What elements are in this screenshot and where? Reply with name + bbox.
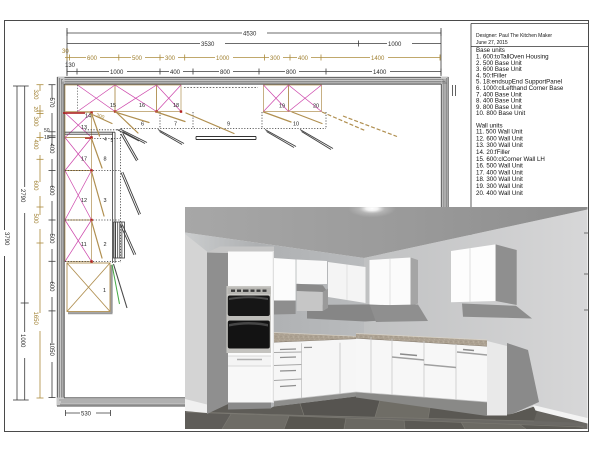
svg-text:400: 400 xyxy=(170,70,181,76)
svg-text:18: 18 xyxy=(44,135,50,141)
svg-text:17: 17 xyxy=(81,157,87,163)
svg-text:800: 800 xyxy=(286,70,297,76)
svg-text:15: 15 xyxy=(110,103,116,109)
svg-text:1000: 1000 xyxy=(19,334,25,348)
svg-text:11: 11 xyxy=(81,242,87,248)
svg-text:1400: 1400 xyxy=(371,56,385,62)
svg-text:4: 4 xyxy=(104,137,107,143)
svg-text:3: 3 xyxy=(104,198,107,204)
svg-text:6: 6 xyxy=(141,122,144,128)
svg-text:300: 300 xyxy=(32,117,38,128)
svg-text:600: 600 xyxy=(48,186,54,197)
svg-text:June 27, 2015: June 27, 2015 xyxy=(476,40,508,46)
svg-text:7: 7 xyxy=(174,122,177,128)
svg-text:13: 13 xyxy=(81,125,87,131)
svg-text:50: 50 xyxy=(44,128,50,134)
svg-text:10: 10 xyxy=(293,122,299,128)
svg-text:500: 500 xyxy=(48,234,54,245)
svg-text:10. 800 Base Unit: 10. 800 Base Unit xyxy=(476,110,525,117)
svg-text:1: 1 xyxy=(103,288,106,294)
svg-text:9: 9 xyxy=(227,122,230,128)
svg-text:Designer: Paul The Kitchen Ma: Designer: Paul The Kitchen Maker xyxy=(476,33,552,39)
svg-text:18: 18 xyxy=(173,103,179,109)
svg-text:1000: 1000 xyxy=(388,42,402,48)
svg-text:2: 2 xyxy=(104,242,107,248)
svg-text:800: 800 xyxy=(220,70,231,76)
svg-text:19: 19 xyxy=(279,104,285,110)
svg-text:1000: 1000 xyxy=(216,56,230,62)
svg-text:300: 300 xyxy=(270,56,281,62)
svg-text:8: 8 xyxy=(104,157,107,163)
svg-text:600: 600 xyxy=(48,282,54,293)
svg-text:20: 20 xyxy=(32,107,38,113)
svg-text:2790: 2790 xyxy=(19,189,25,203)
svg-text:400: 400 xyxy=(48,144,54,155)
svg-text:400: 400 xyxy=(298,56,309,62)
svg-text:20: 20 xyxy=(313,104,319,110)
svg-text:3530: 3530 xyxy=(201,42,215,48)
svg-text:1050: 1050 xyxy=(48,343,54,357)
svg-text:600: 600 xyxy=(32,181,38,192)
svg-text:3790: 3790 xyxy=(3,232,9,246)
svg-text:1400: 1400 xyxy=(373,70,387,76)
svg-text:20. 400 Wall Unit: 20. 400 Wall Unit xyxy=(476,190,523,197)
svg-text:130: 130 xyxy=(65,63,76,69)
svg-text:1000: 1000 xyxy=(110,70,124,76)
svg-text:530: 530 xyxy=(81,412,92,418)
svg-text:12: 12 xyxy=(81,198,87,204)
svg-text:5: 5 xyxy=(111,138,114,144)
svg-text:14: 14 xyxy=(85,114,91,120)
svg-text:500: 500 xyxy=(32,214,38,225)
svg-text:4530: 4530 xyxy=(243,32,257,38)
svg-text:600: 600 xyxy=(87,56,98,62)
svg-text:500: 500 xyxy=(132,56,143,62)
svg-text:300: 300 xyxy=(165,56,176,62)
svg-text:30: 30 xyxy=(62,49,69,55)
svg-text:320: 320 xyxy=(32,90,38,101)
svg-text:1650: 1650 xyxy=(32,312,38,326)
svg-text:16: 16 xyxy=(139,103,145,109)
svg-text:400: 400 xyxy=(32,140,38,151)
svg-text:570: 570 xyxy=(48,98,54,109)
